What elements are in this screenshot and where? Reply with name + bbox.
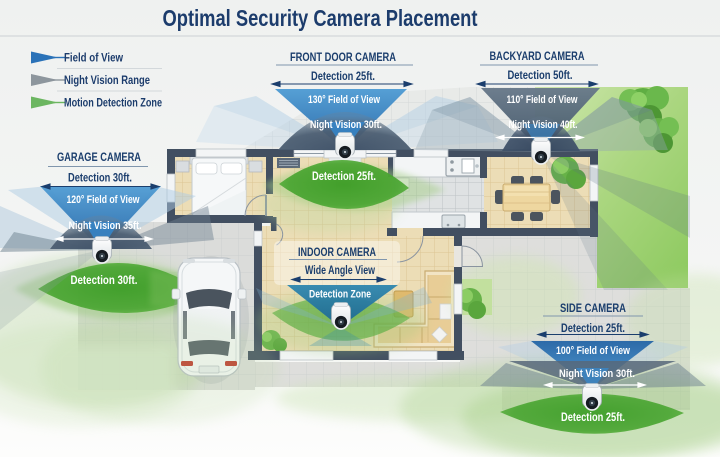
- svg-text:Optimal Security Camera Placem: Optimal Security Camera Placement: [163, 5, 478, 31]
- svg-text:Night Vision 40ft.: Night Vision 40ft.: [509, 119, 578, 131]
- svg-text:100° Field of View: 100° Field of View: [556, 345, 630, 357]
- svg-text:Detection 30ft.: Detection 30ft.: [68, 173, 132, 185]
- svg-text:Detection 25ft.: Detection 25ft.: [311, 71, 375, 83]
- svg-text:Detection 25ft.: Detection 25ft.: [561, 412, 625, 424]
- svg-text:Night Vision Range: Night Vision Range: [64, 75, 150, 87]
- svg-text:Motion Detection Zone: Motion Detection Zone: [64, 98, 162, 110]
- svg-text:SIDE CAMERA: SIDE CAMERA: [560, 303, 626, 315]
- svg-text:Night Vision 35ft.: Night Vision 35ft.: [69, 220, 142, 232]
- svg-text:130° Field of View: 130° Field of View: [308, 94, 380, 106]
- svg-text:Detection 30ft.: Detection 30ft.: [71, 275, 138, 287]
- svg-text:Field of View: Field of View: [64, 53, 123, 65]
- svg-text:120° Field of View: 120° Field of View: [67, 194, 140, 206]
- svg-text:Detection Zone: Detection Zone: [309, 289, 371, 301]
- svg-text:110° Field of View: 110° Field of View: [507, 94, 578, 106]
- svg-text:Detection 50ft.: Detection 50ft.: [508, 70, 573, 82]
- svg-text:FRONT DOOR CAMERA: FRONT DOOR CAMERA: [290, 52, 396, 64]
- svg-text:INDOOR CAMERA: INDOOR CAMERA: [298, 247, 376, 259]
- svg-text:Night Vision 30ft.: Night Vision 30ft.: [310, 119, 382, 131]
- svg-text:Night Vision 30ft.: Night Vision 30ft.: [559, 368, 635, 380]
- svg-text:Detection 25ft.: Detection 25ft.: [561, 323, 625, 335]
- svg-text:BACKYARD CAMERA: BACKYARD CAMERA: [490, 51, 585, 63]
- svg-text:GARAGE CAMERA: GARAGE CAMERA: [57, 152, 141, 164]
- svg-text:Wide Angle View: Wide Angle View: [305, 265, 375, 277]
- svg-text:Detection 25ft.: Detection 25ft.: [312, 171, 376, 183]
